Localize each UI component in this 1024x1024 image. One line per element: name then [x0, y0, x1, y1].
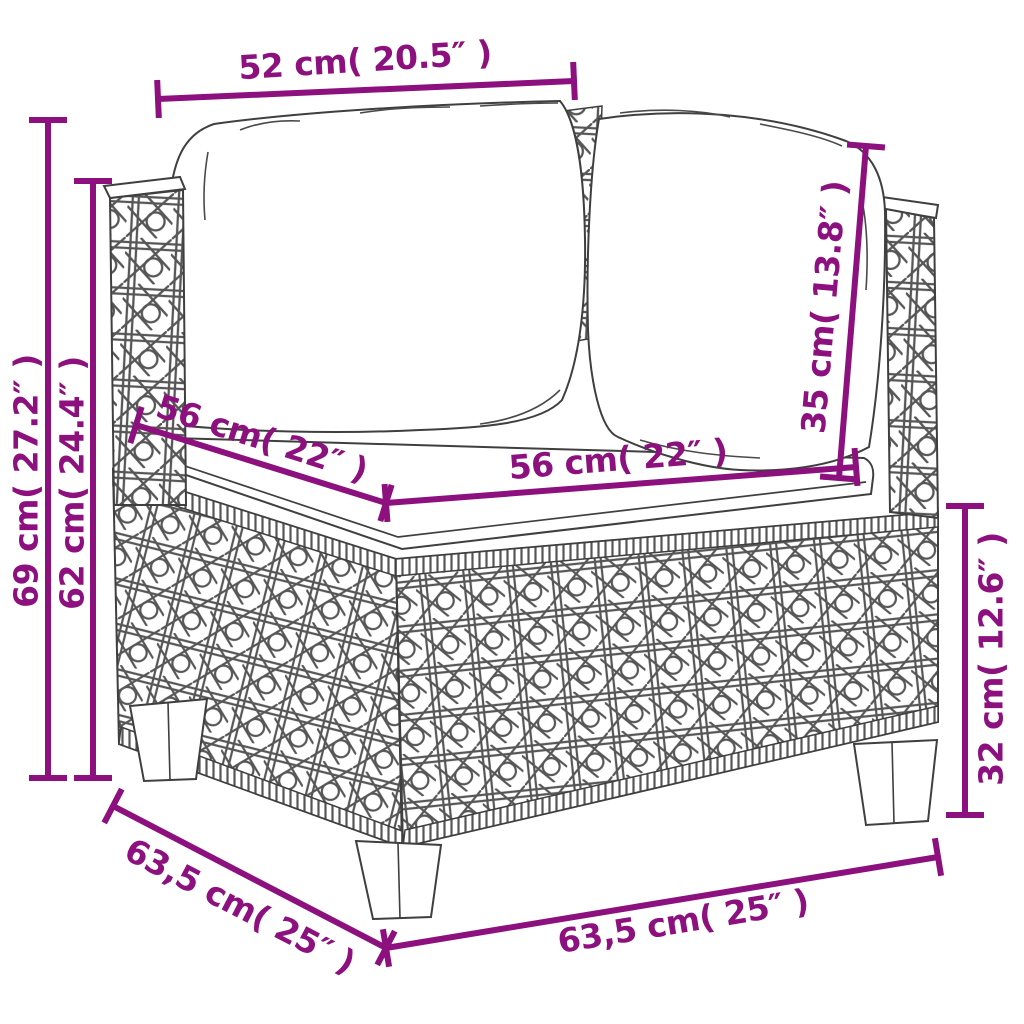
dimension-line-back-width-top	[158, 81, 574, 99]
dimension-label-base-width-bottom: 63,5 cm( 25″ )	[555, 881, 812, 961]
dimension-label-base-depth-bottom: 63,5 cm( 25″ )	[118, 830, 361, 982]
left-back-cushion	[162, 101, 585, 432]
dimension-label-height-overall: 69 cm( 27.2″ )	[7, 354, 46, 608]
dimension-label-height-back-post: 62 cm( 24.4″ )	[53, 356, 92, 610]
diagram-canvas: 52 cm( 20.5″ )69 cm( 27.2″ )62 cm( 24.4″…	[0, 0, 1024, 1024]
dimension-tick-start-seat-width	[385, 484, 388, 522]
sofa-leg-front-right	[854, 740, 937, 825]
dimension-tick-start-back-cushion-height	[847, 144, 885, 147]
dimension-label-base-height: 32 cm( 12.6″ )	[972, 532, 1011, 786]
dimension-tick-start-base-width-bottom	[383, 929, 389, 966]
dimension-tick-start-back-width-top	[157, 80, 159, 118]
dimension-tick-end-back-width-top	[573, 62, 575, 100]
dimension-tick-end-back-cushion-height	[820, 476, 858, 479]
dimension-height-back-post: 62 cm( 24.4″ )	[53, 181, 113, 778]
dimension-tick-end-base-width-bottom	[935, 838, 941, 875]
dimension-base-width-bottom: 63,5 cm( 25″ )	[383, 838, 941, 966]
dimension-label-back-width-top: 52 cm( 20.5″ )	[237, 33, 493, 87]
dimension-base-height: 32 cm( 12.6″ )	[946, 506, 1011, 815]
product-dimension-diagram: 52 cm( 20.5″ )69 cm( 27.2″ )62 cm( 24.4″…	[0, 0, 1024, 1024]
right-wicker-post	[880, 197, 938, 518]
left-wicker-post	[104, 177, 186, 505]
